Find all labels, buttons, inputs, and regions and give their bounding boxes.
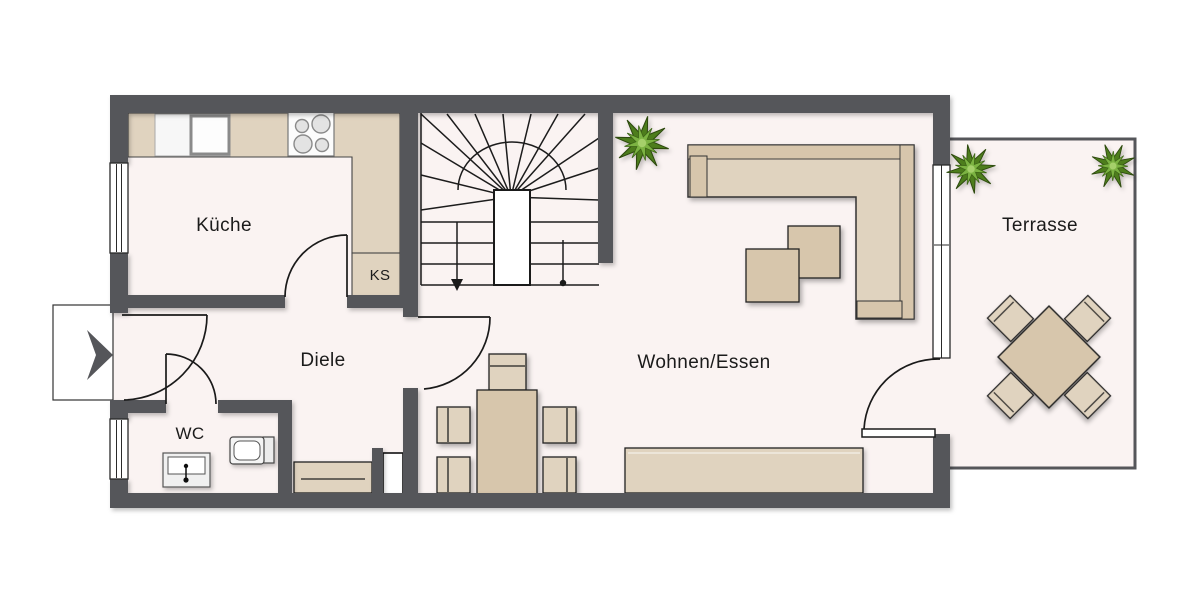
chimney-shaft — [383, 453, 403, 495]
chair — [437, 457, 470, 493]
label-kitchen: Küche — [196, 215, 252, 236]
stair-newel — [494, 190, 530, 285]
kitchen-sink — [155, 114, 230, 156]
label-wc: WC — [175, 424, 204, 443]
label-hall: Diele — [300, 350, 345, 371]
hall-sideboard — [294, 462, 372, 493]
chair — [437, 407, 470, 443]
wall-hall-living — [403, 388, 418, 493]
chair — [543, 407, 576, 443]
floorplan-drawing: Küche KS Diele WC Wohnen/Essen Terrasse — [0, 0, 1200, 600]
dining-table — [477, 390, 537, 494]
wall-bottom — [110, 493, 950, 508]
wall-right — [933, 95, 950, 165]
label-fridge: KS — [370, 267, 391, 284]
chair — [489, 354, 526, 390]
stove — [288, 112, 334, 156]
wall-wc-top — [218, 400, 281, 413]
ottoman — [746, 249, 799, 302]
wall-stairs-living — [598, 113, 613, 263]
walkline-start-dot-icon — [560, 280, 566, 286]
living-window — [933, 165, 950, 358]
wall-wc-top — [110, 400, 166, 413]
label-living: Wohnen/Essen — [637, 352, 770, 373]
wall-wc-right — [278, 400, 292, 493]
wall-left — [110, 479, 128, 508]
chair — [543, 457, 576, 493]
label-terrace: Terrasse — [1002, 215, 1078, 236]
wc-window — [110, 419, 128, 479]
wall-stub — [372, 448, 383, 493]
wall-hall-living — [403, 295, 418, 317]
wall-right — [933, 434, 950, 508]
kitchen-window — [110, 163, 128, 253]
sofa-armrest — [857, 301, 902, 318]
wall-top — [110, 95, 950, 113]
floorplan-canvas: Küche KS Diele WC Wohnen/Essen Terrasse — [0, 0, 1200, 600]
living-lowboard — [625, 448, 863, 493]
wall-left — [110, 95, 128, 163]
wall-kitchen-stairs — [400, 113, 418, 308]
wall-hall-kitchen — [128, 295, 285, 308]
toilet — [230, 437, 274, 464]
wall-left — [110, 253, 128, 313]
wc-sink — [163, 453, 210, 487]
sofa-back — [900, 145, 914, 319]
sofa-back — [688, 145, 914, 159]
sofa-armrest — [690, 156, 707, 197]
